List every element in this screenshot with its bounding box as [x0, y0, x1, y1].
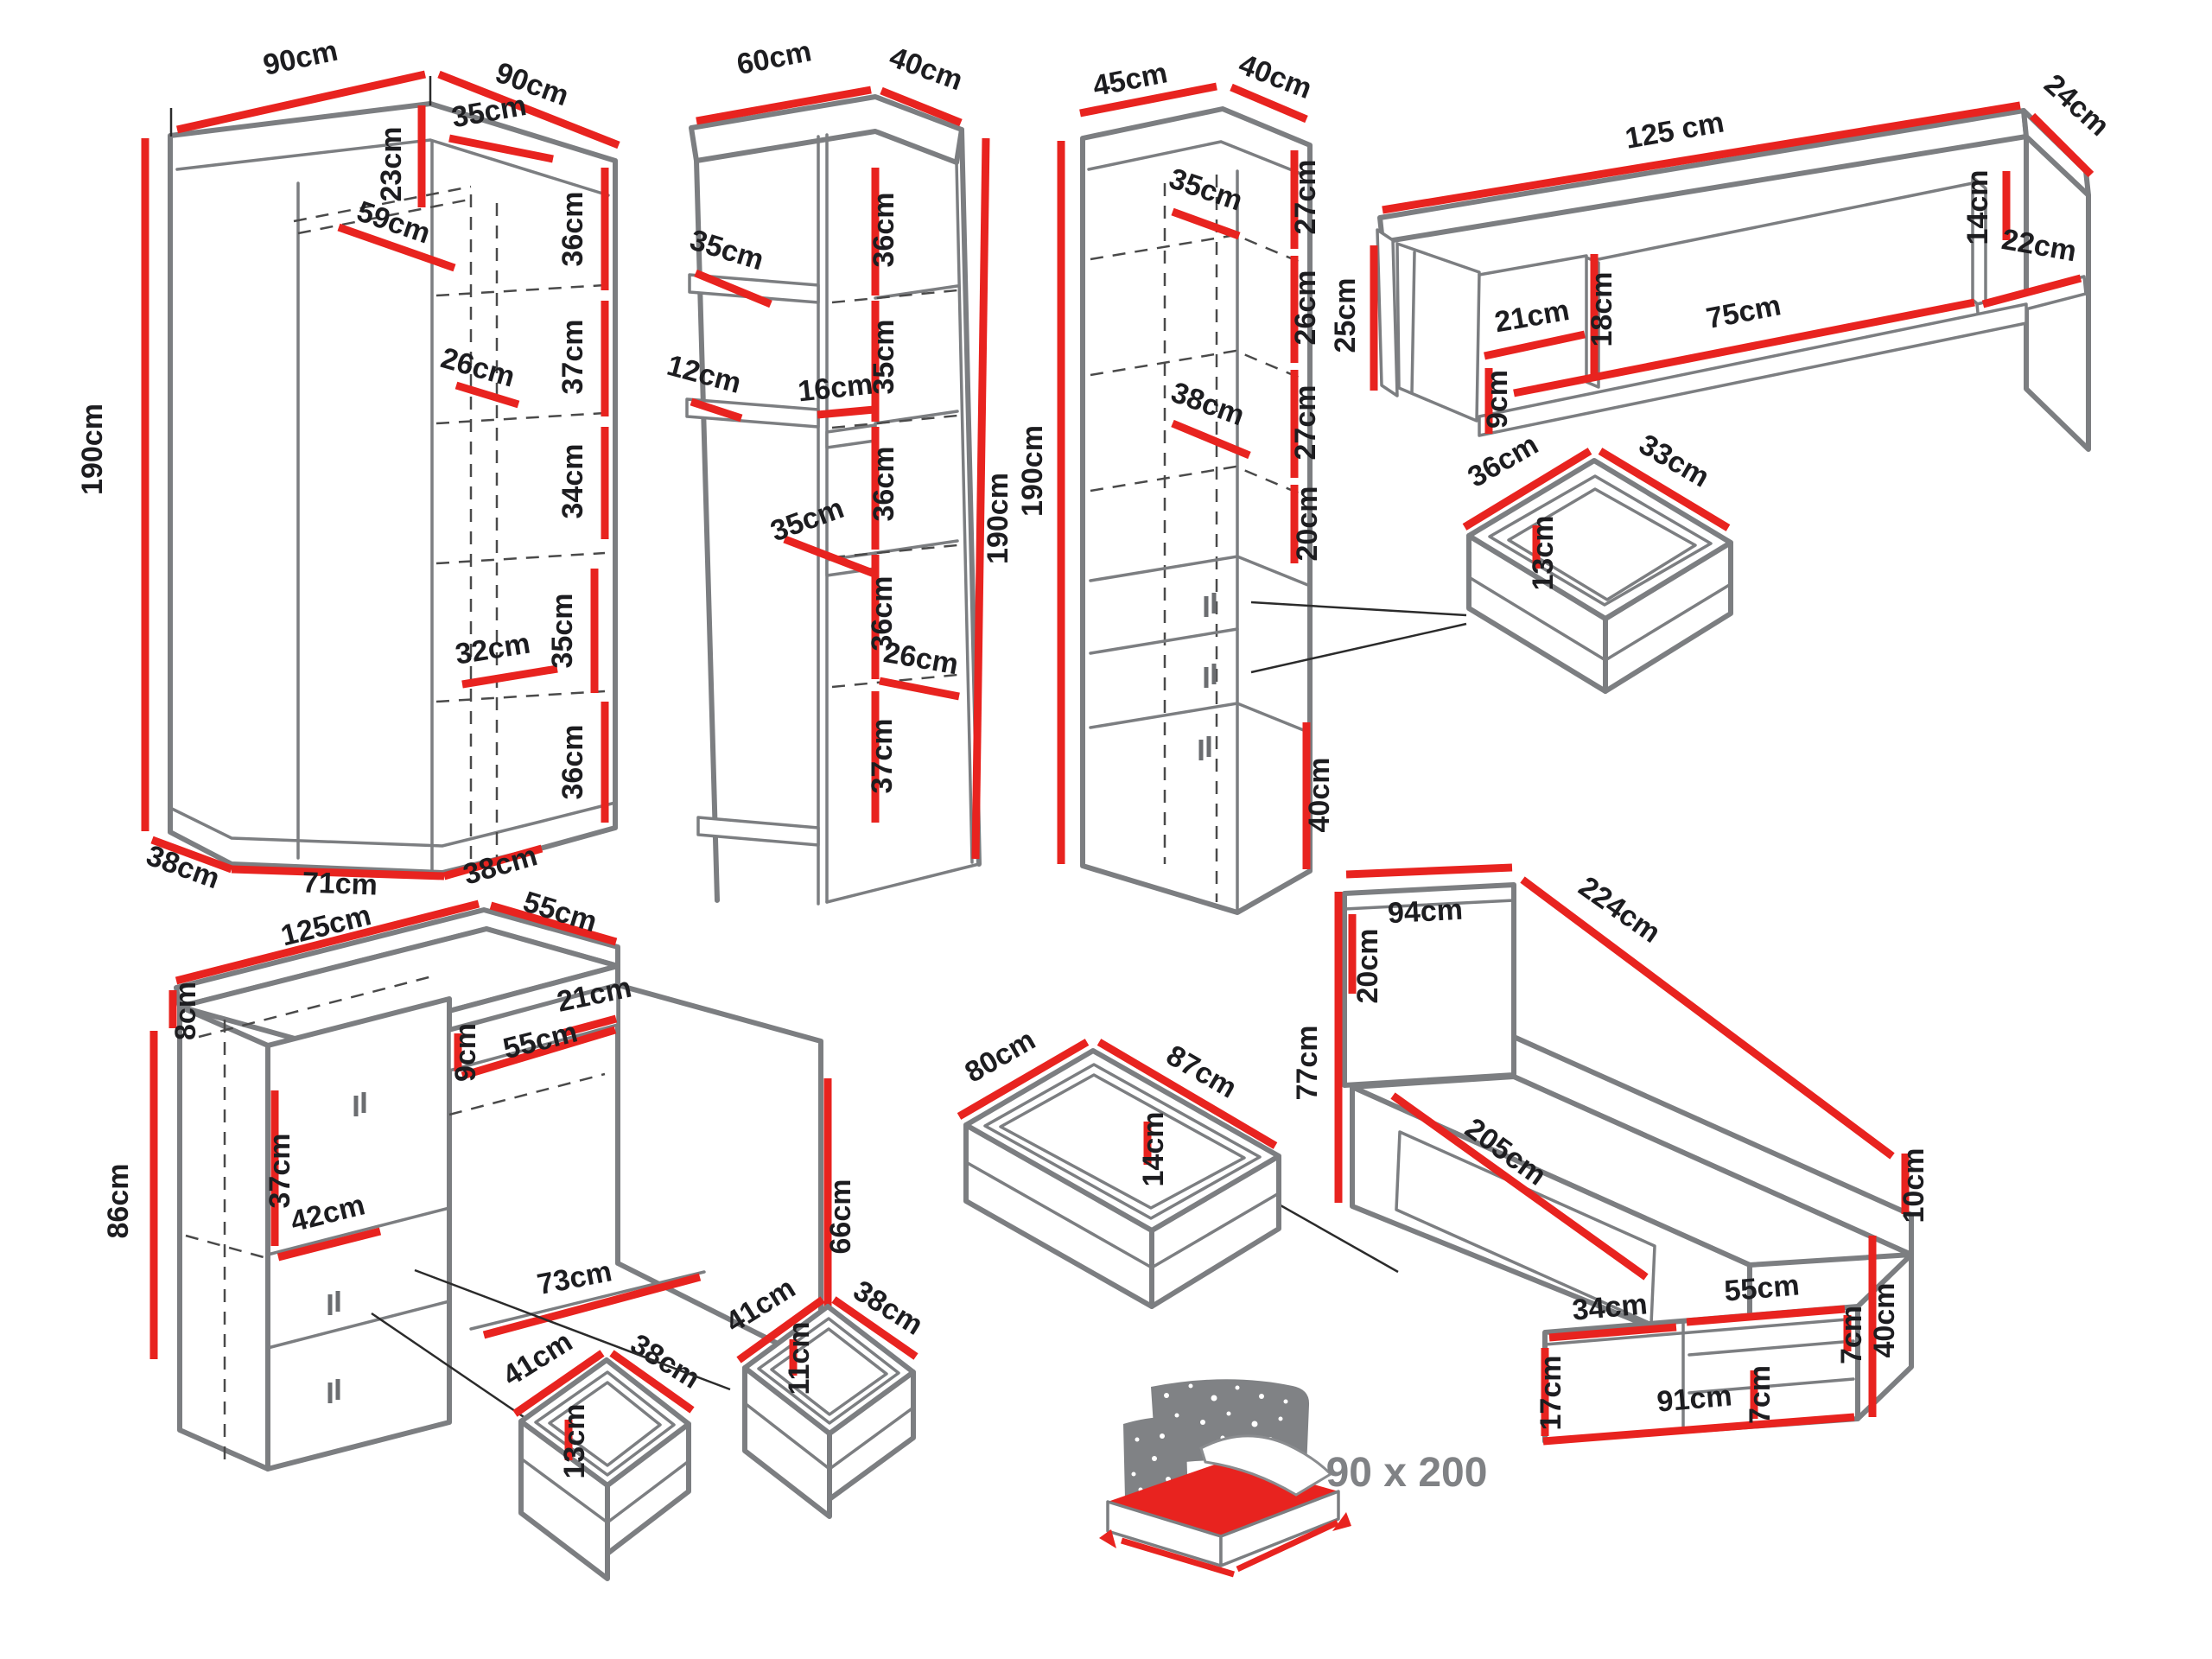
- dim-label: 40cm: [1868, 1283, 1901, 1358]
- dim-label: 91cm: [1656, 1379, 1733, 1418]
- furniture-dimensions-diagram: 90cm 90cm 35cm 23cm 59cm 190cm 36cm 37cm…: [0, 0, 2212, 1659]
- dim-label: 35cm: [868, 320, 900, 395]
- piece-bed-drawer: 80cm 87cm 14cm: [959, 1023, 1398, 1306]
- dim-label: 190cm: [1016, 425, 1049, 517]
- dim-label: 27cm: [1289, 385, 1322, 461]
- dim-label: 20cm: [1351, 929, 1384, 1004]
- piece-shelf-unit: 60cm 40cm 35cm 12cm 16cm 35cm 36cm 35cm …: [664, 35, 1014, 904]
- dim-label: 7cm: [1744, 1365, 1777, 1424]
- dim-label: 37cm: [556, 320, 589, 395]
- dim-label: 11cm: [783, 1321, 816, 1395]
- piece-wall-shelf: 125 cm 24cm 14cm 22cm 25cm 21cm 9cm 18cm…: [1329, 68, 2115, 449]
- piece-bed: 94cm 224cm 77cm 20cm 10cm 205cm 40cm 34c…: [1291, 868, 1930, 1441]
- dim-label: 13cm: [1527, 516, 1560, 591]
- dim-label: 36cm: [868, 447, 900, 522]
- dim-label: 66cm: [824, 1179, 857, 1255]
- wall-shelf-left-end: [1377, 230, 1397, 396]
- dim-label: 94cm: [1387, 893, 1464, 930]
- dim-label: 35cm: [546, 594, 579, 669]
- dim-label: 8cm: [169, 982, 202, 1040]
- dim-label: 14cm: [1961, 170, 1994, 245]
- dim-label: 16cm: [797, 368, 874, 409]
- piece-tall-cabinet: 45cm 40cm 35cm 38cm 190cm 27cm 26cm 27cm…: [1016, 48, 1336, 912]
- dim-label: 13cm: [558, 1404, 591, 1479]
- dim-label: 190cm: [76, 404, 109, 495]
- dim-label: 73cm: [535, 1255, 615, 1301]
- dim-label: 21cm: [1492, 294, 1572, 340]
- dim-label: 20cm: [1291, 486, 1324, 562]
- dim-label: 77cm: [1291, 1026, 1324, 1101]
- dim-label: 9cm: [449, 1023, 482, 1082]
- dim-label: 86cm: [102, 1164, 135, 1239]
- dim-label: 55cm: [1723, 1268, 1801, 1307]
- dim-label: 224cm: [1573, 870, 1667, 950]
- dim-label: 75cm: [1704, 289, 1784, 335]
- dim-label: 7cm: [1835, 1306, 1868, 1364]
- dim-label: 14cm: [1137, 1112, 1170, 1187]
- dim-label: 36cm: [868, 193, 900, 268]
- dim-label: 60cm: [734, 35, 815, 81]
- desk-right-panel: [618, 985, 821, 1365]
- dim-label: 37cm: [866, 719, 899, 794]
- dim-label: 36cm: [556, 192, 589, 267]
- dim-label: 9cm: [1481, 370, 1514, 429]
- shelf-unit-dimension-lines: [691, 90, 986, 859]
- dim-label: 37cm: [264, 1134, 296, 1209]
- dim-label: 26cm: [881, 636, 961, 682]
- dim-label: 125 cm: [1623, 105, 1726, 155]
- dim-label: 27cm: [1289, 160, 1322, 235]
- dim-label: 34cm: [556, 444, 589, 519]
- dim-label: 36cm: [556, 725, 589, 800]
- dim-label: 190cm: [982, 473, 1014, 564]
- dim-label: 23cm: [375, 127, 408, 202]
- dim-label: 18cm: [1586, 272, 1618, 347]
- dim-label: 10cm: [1897, 1148, 1930, 1224]
- dim-label: 25cm: [1329, 278, 1362, 353]
- dim-label: 35cm: [766, 492, 849, 548]
- dim-label: 71cm: [302, 867, 378, 902]
- dim-label: 40cm: [1303, 758, 1336, 833]
- piece-corner-wardrobe: 90cm 90cm 35cm 23cm 59cm 190cm 36cm 37cm…: [76, 35, 619, 902]
- dim-label: 17cm: [1535, 1356, 1567, 1431]
- dim-label: 35cm: [449, 89, 529, 135]
- dim-label: 34cm: [1571, 1287, 1649, 1326]
- dim-label: 90cm: [260, 35, 340, 82]
- mattress-size-label: 90 x 200: [1326, 1450, 1488, 1496]
- dim-label: 33cm: [1633, 428, 1714, 493]
- cabinet-body: [1083, 109, 1310, 912]
- dim-label: 40cm: [885, 41, 967, 97]
- wall-shelf-door: [1397, 244, 1479, 421]
- dim-label: 26cm: [1289, 270, 1322, 346]
